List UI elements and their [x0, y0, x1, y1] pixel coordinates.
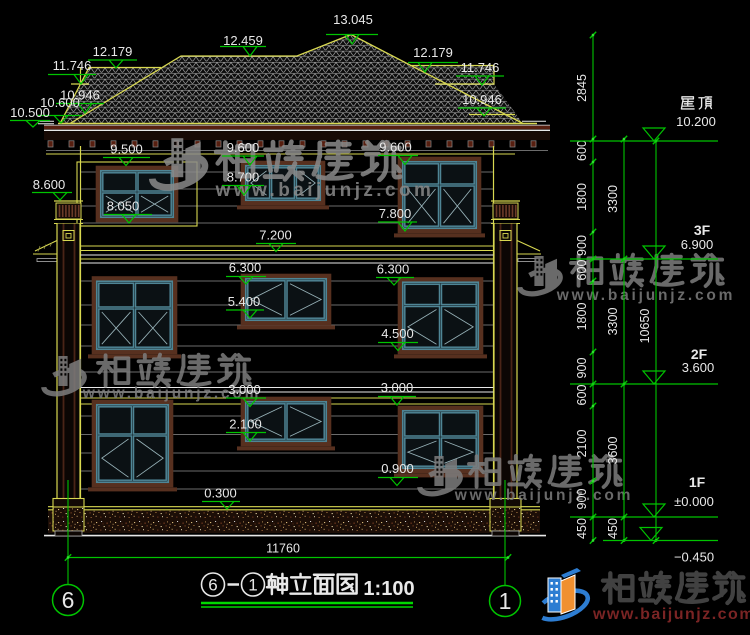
- svg-text:12.179: 12.179: [413, 45, 453, 60]
- svg-text:6.300: 6.300: [229, 260, 262, 275]
- svg-text:1F: 1F: [689, 474, 706, 490]
- svg-text:600: 600: [575, 385, 589, 406]
- svg-text:600: 600: [575, 260, 589, 281]
- svg-text:11.746: 11.746: [53, 58, 92, 73]
- svg-text:12.459: 12.459: [223, 33, 263, 48]
- svg-text:10.200: 10.200: [676, 114, 716, 129]
- svg-text:2.100: 2.100: [229, 417, 262, 432]
- svg-text:2845: 2845: [575, 74, 589, 102]
- svg-text:10650: 10650: [638, 309, 652, 344]
- svg-text:0.300: 0.300: [204, 486, 237, 501]
- svg-text:1: 1: [499, 588, 512, 614]
- svg-text:3.000: 3.000: [381, 380, 414, 395]
- svg-text:6: 6: [208, 576, 217, 595]
- svg-text:1800: 1800: [575, 183, 589, 211]
- svg-text:900: 900: [575, 489, 589, 510]
- svg-text:7.800: 7.800: [379, 206, 412, 221]
- svg-text:7.200: 7.200: [259, 228, 292, 243]
- svg-text:10.500: 10.500: [10, 105, 50, 120]
- svg-text:3300: 3300: [606, 185, 620, 213]
- svg-text:10.946: 10.946: [462, 92, 502, 107]
- svg-text:8.050: 8.050: [107, 199, 140, 214]
- svg-text:1800: 1800: [575, 303, 589, 331]
- svg-text:8.700: 8.700: [227, 170, 260, 185]
- svg-text:www.baijunjz.com: www.baijunjz.com: [454, 487, 633, 504]
- svg-text:−0.450: −0.450: [674, 550, 714, 565]
- svg-text:±0.000: ±0.000: [674, 494, 714, 509]
- svg-text:1:100: 1:100: [363, 578, 414, 600]
- svg-text:4.500: 4.500: [381, 326, 414, 341]
- svg-text:www.baijunjz.com: www.baijunjz.com: [556, 287, 735, 304]
- svg-text:3.000: 3.000: [228, 382, 261, 397]
- svg-text:9.600: 9.600: [379, 140, 412, 155]
- svg-text:600: 600: [575, 140, 589, 161]
- svg-text:11.746: 11.746: [461, 60, 500, 75]
- svg-text:450: 450: [606, 518, 620, 539]
- svg-text:6: 6: [62, 587, 75, 613]
- svg-text:11760: 11760: [266, 542, 300, 556]
- svg-text:450: 450: [575, 518, 589, 539]
- svg-text:900: 900: [575, 358, 589, 379]
- svg-text:8.600: 8.600: [33, 177, 66, 192]
- svg-text:3F: 3F: [694, 222, 711, 238]
- svg-text:5.400: 5.400: [228, 294, 261, 309]
- svg-text:2100: 2100: [575, 430, 589, 458]
- svg-text:12.179: 12.179: [93, 44, 133, 59]
- svg-text:www.baijunjz.com: www.baijunjz.com: [592, 606, 750, 623]
- svg-text:6.900: 6.900: [681, 237, 714, 252]
- svg-text:9.500: 9.500: [110, 142, 143, 157]
- svg-text:9.600: 9.600: [227, 140, 260, 155]
- svg-text:1: 1: [248, 576, 257, 595]
- svg-text:3.600: 3.600: [682, 360, 715, 375]
- svg-text:6.300: 6.300: [377, 262, 410, 277]
- svg-text:0.900: 0.900: [381, 461, 414, 476]
- svg-text:3600: 3600: [606, 437, 620, 465]
- svg-text:3300: 3300: [606, 308, 620, 336]
- svg-text:13.045: 13.045: [333, 12, 373, 27]
- svg-text:900: 900: [575, 235, 589, 256]
